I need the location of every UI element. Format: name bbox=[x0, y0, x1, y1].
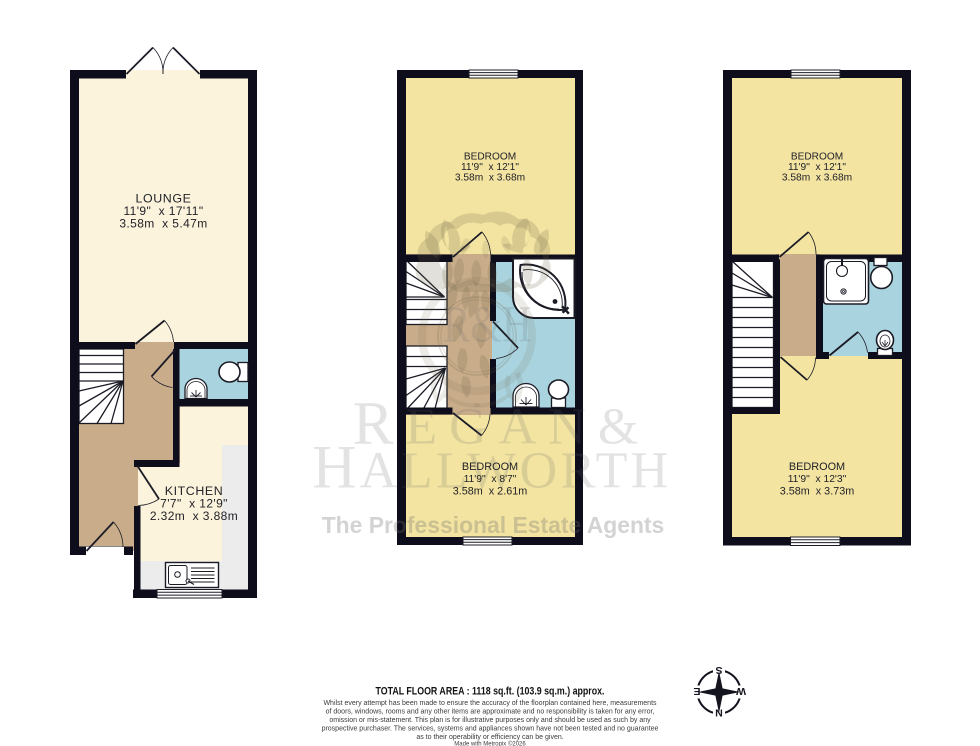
svg-text:W: W bbox=[736, 685, 746, 697]
svg-text:prospective purchaser. The ser: prospective purchaser. The services, sys… bbox=[322, 726, 659, 733]
svg-text:E: E bbox=[693, 685, 700, 697]
svg-text:3.58m x 3.73m: 3.58m x 3.73m bbox=[780, 486, 854, 498]
svg-text:TOTAL FLOOR AREA : 1118 sq.ft.: TOTAL FLOOR AREA : 1118 sq.ft. (103.9 sq… bbox=[376, 686, 605, 698]
svg-text:3.58m x 5.47m: 3.58m x 5.47m bbox=[119, 217, 207, 231]
svg-text:Whilst every attempt has been: Whilst every attempt has been made to en… bbox=[323, 700, 657, 707]
svg-text:as to their operability or eff: as to their operability or efficiency ca… bbox=[416, 734, 563, 741]
svg-text:3.58m x 3.68m: 3.58m x 3.68m bbox=[782, 173, 852, 184]
svg-text:of doors, windows, rooms and a: of doors, windows, rooms and any other i… bbox=[326, 709, 655, 716]
svg-text:3.58m x 2.61m: 3.58m x 2.61m bbox=[453, 486, 527, 498]
svg-text:N: N bbox=[715, 707, 723, 719]
svg-text:S: S bbox=[715, 664, 722, 676]
svg-text:11'9" x 12'3": 11'9" x 12'3" bbox=[788, 474, 847, 485]
svg-text:BEDROOM: BEDROOM bbox=[464, 152, 516, 163]
svg-text:R&H: R&H bbox=[443, 297, 532, 354]
svg-text:11'9" x 12'1": 11'9" x 12'1" bbox=[788, 162, 846, 173]
svg-text:The Professional Estate Agents: The Professional Estate Agents bbox=[322, 512, 665, 538]
svg-text:BEDROOM: BEDROOM bbox=[789, 461, 845, 473]
svg-text:2.32m x 3.88m: 2.32m x 3.88m bbox=[150, 509, 238, 523]
svg-text:11'9" x 8'7": 11'9" x 8'7" bbox=[464, 474, 517, 485]
svg-text:omission or mis-statement. Thi: omission or mis-statement. This plan is … bbox=[329, 717, 651, 724]
svg-text:BEDROOM: BEDROOM bbox=[462, 461, 518, 473]
svg-text:11'9" x 12'1": 11'9" x 12'1" bbox=[461, 162, 519, 173]
svg-text:3.58m x 3.68m: 3.58m x 3.68m bbox=[455, 173, 525, 184]
svg-text:BEDROOM: BEDROOM bbox=[791, 152, 843, 163]
svg-text:Made with Metropix ©2026: Made with Metropix ©2026 bbox=[454, 741, 526, 746]
